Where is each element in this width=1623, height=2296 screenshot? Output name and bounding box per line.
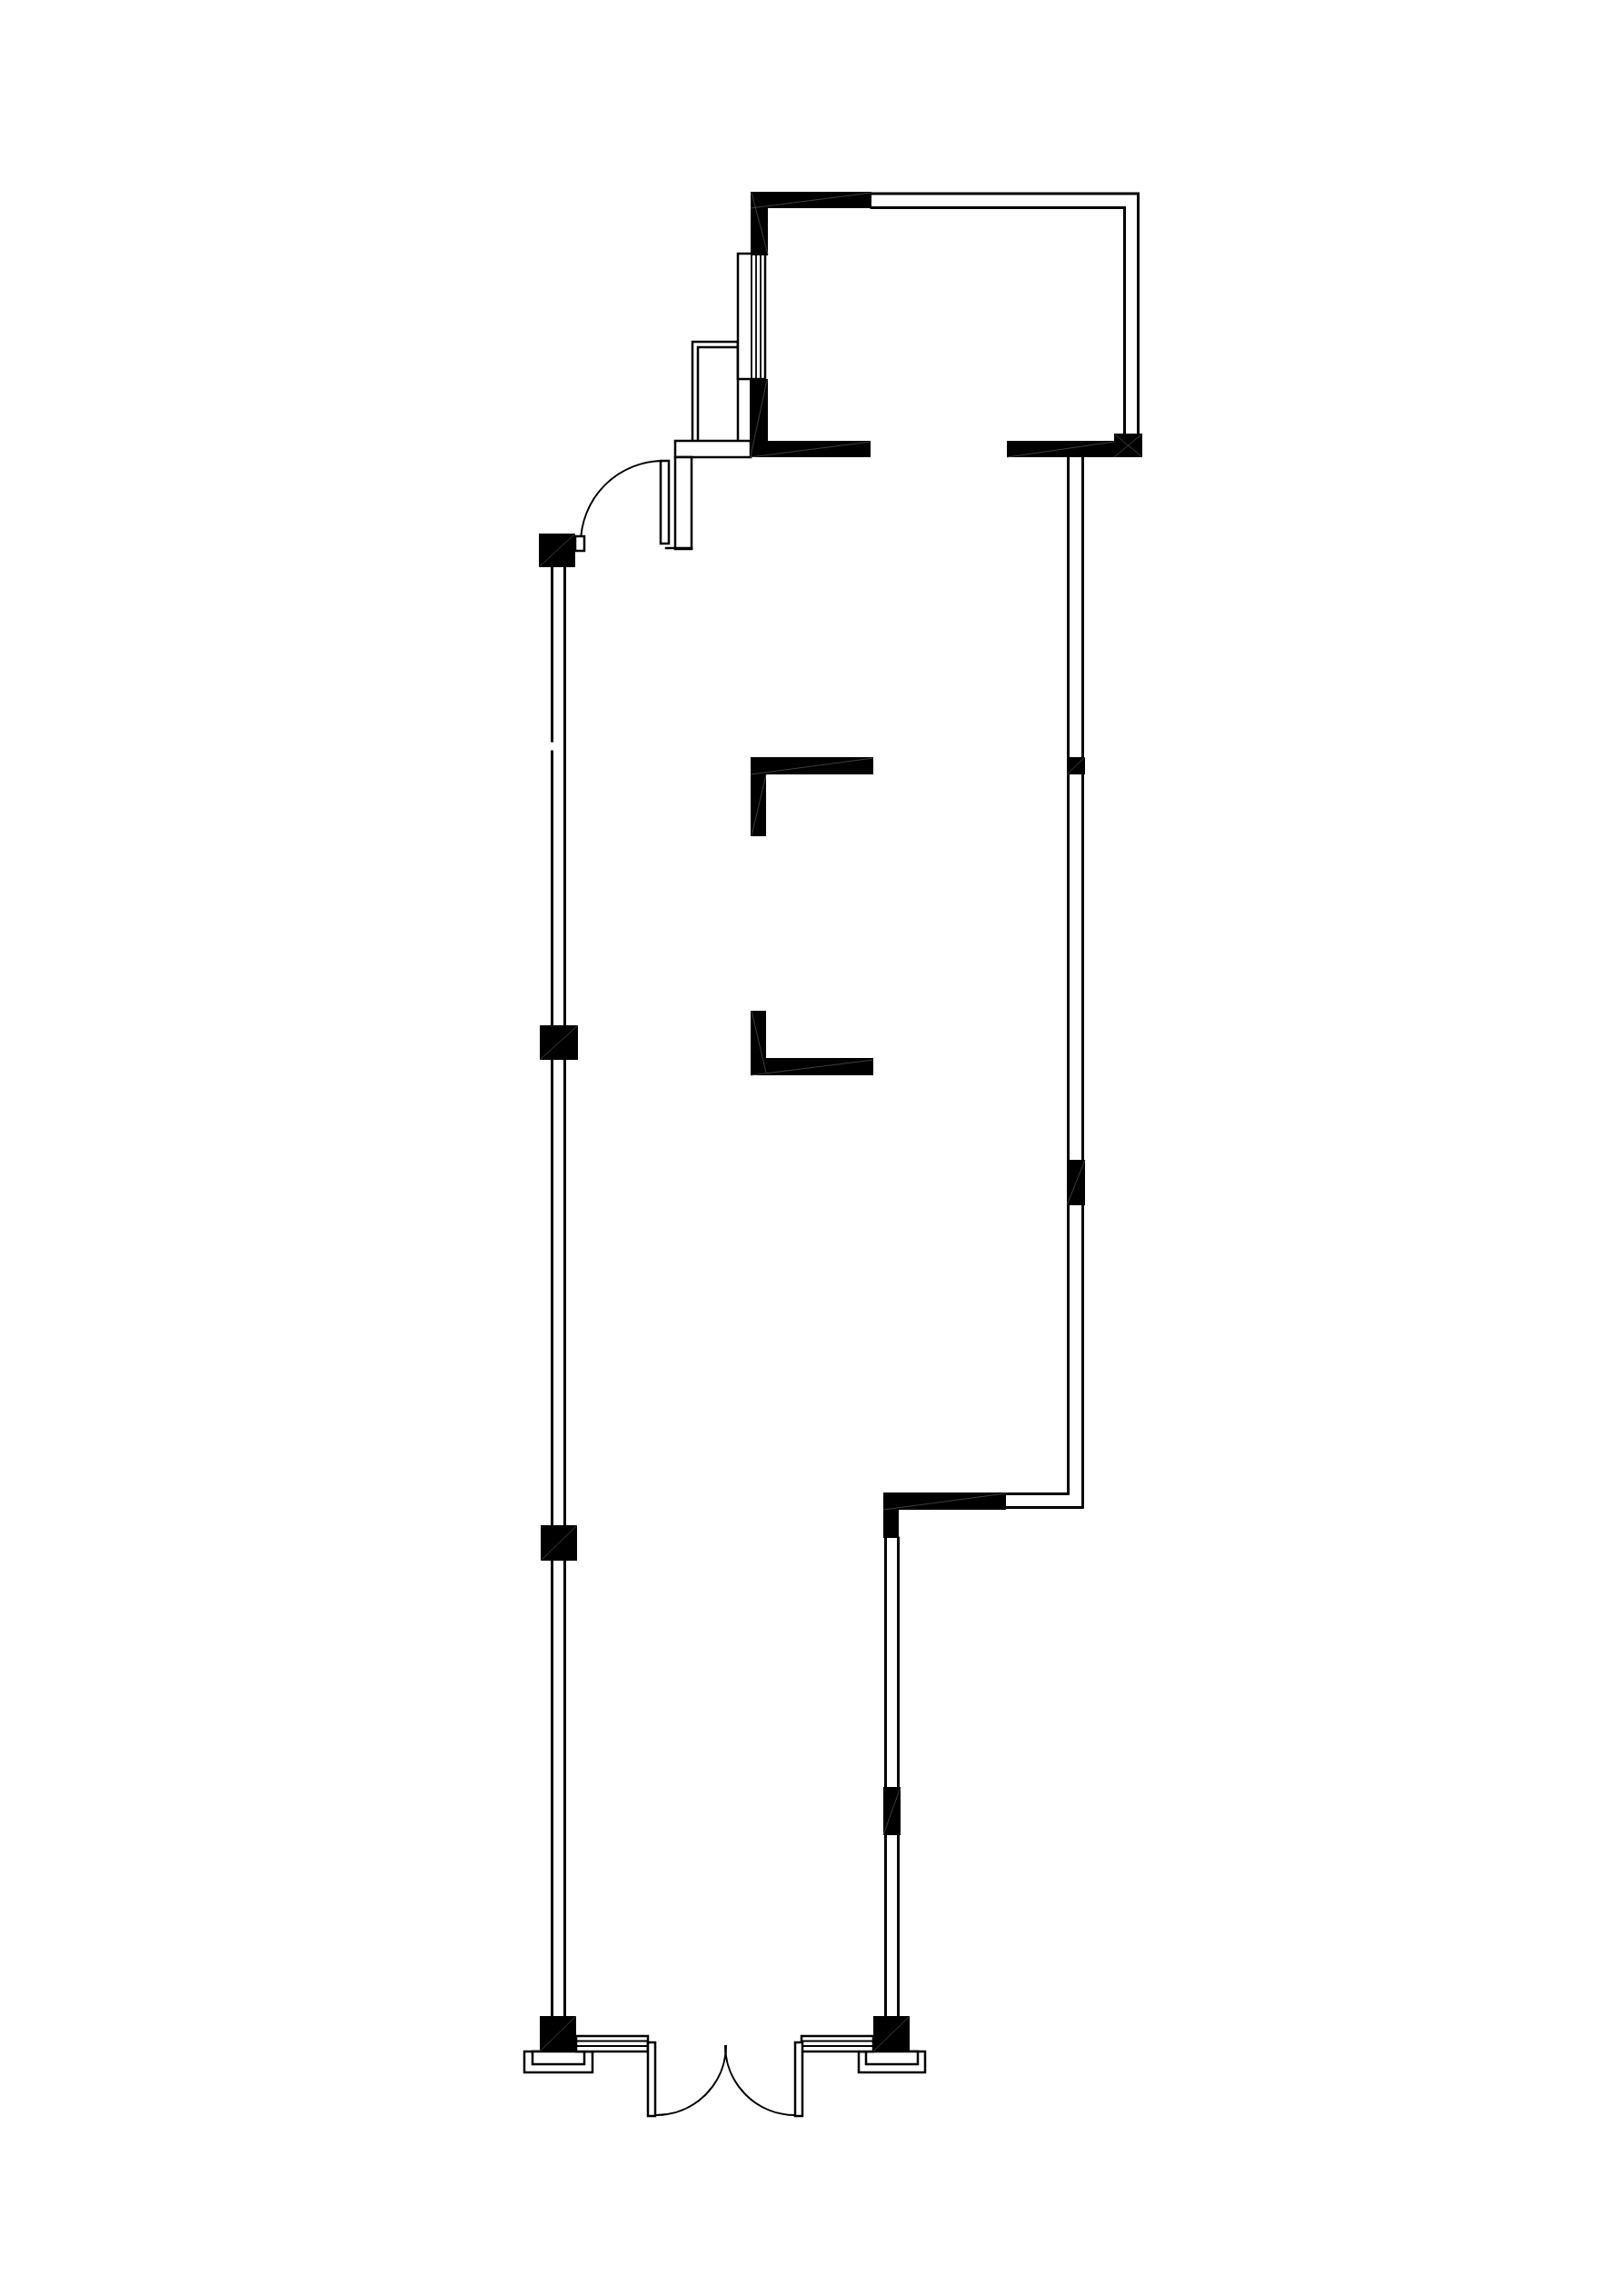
floor-plan-page [0,0,1623,2296]
entry-door-stop [575,536,584,551]
wall-step-corner [883,1492,1006,1538]
room-outline-inner [871,208,1125,434]
double-door-jamb-left [648,2042,655,2116]
vestibule-wall-outer [692,342,738,443]
wall-stub-lower [751,1011,873,1075]
entry-door-jamb [675,457,692,549]
window-sill-inner [866,2051,918,2064]
window-sill-inner [533,2051,584,2064]
entry-wall-band [675,441,751,457]
window-bottom-right-frame [802,2036,873,2051]
double-door-swing-arc-right [725,2045,795,2115]
double-door-jamb-right [795,2042,802,2116]
wall-top-room-bottom-right [1007,434,1142,457]
double-door-swing-arc-left [656,2045,726,2115]
entry-door-swing-arc [581,461,663,544]
room-outline-outer [871,194,1139,434]
entry-door-leaf [661,461,669,544]
floor-plan-canvas [0,0,1623,2296]
wall-stub-upper [751,757,873,836]
window-bottom-left-frame [576,2036,648,2051]
